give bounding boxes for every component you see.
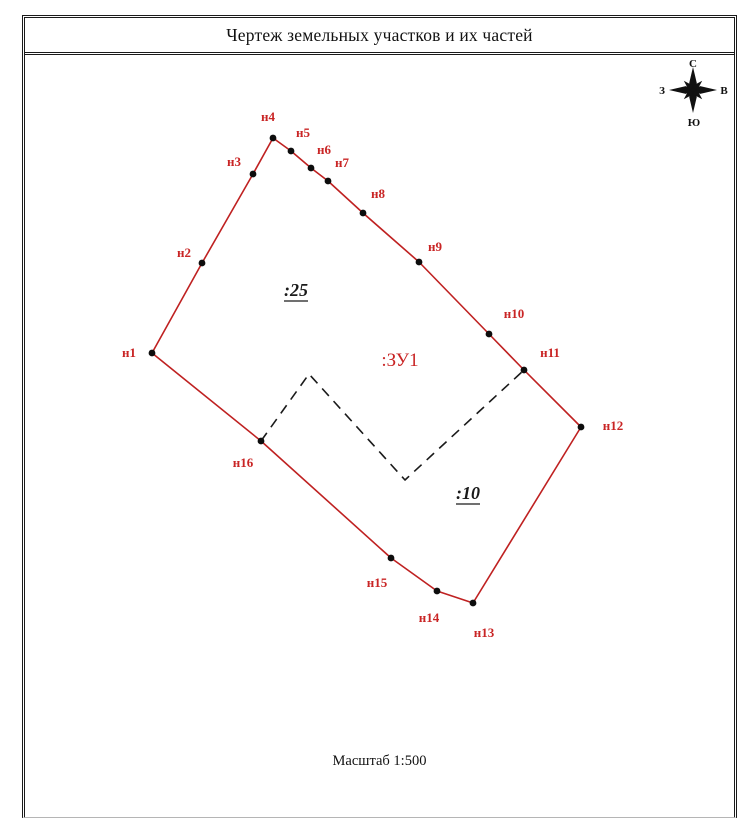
parcel-label-2: :ЗУ1 [381,350,418,371]
boundary-point-dot-н12 [578,424,585,431]
boundary-point-dot-н2 [199,260,206,267]
parcel-geometry: н1н2н3н4н5н6н7н8н9н10н11н12н13н14н15н16:… [122,109,623,640]
cadastral-drawing: н1н2н3н4н5н6н7н8н9н10н11н12н13н14н15н16:… [0,0,750,820]
compass-south-label: Ю [688,117,700,129]
boundary-point-dot-н14 [434,588,441,595]
compass-star-icon [669,67,717,113]
scale-label: Масштаб 1:500 [22,753,737,770]
boundary-point-label-н13: н13 [474,625,495,640]
boundary-point-dot-н10 [486,331,493,338]
compass-east-label: В [720,85,728,97]
boundary-point-dot-н5 [288,148,295,155]
boundary-point-dot-н4 [270,135,277,142]
boundary-point-dot-н9 [416,259,423,266]
boundary-point-label-н10: н10 [504,306,525,321]
boundary-point-label-н6: н6 [317,142,331,157]
boundary-point-dot-н11 [521,367,528,374]
boundary-point-label-н3: н3 [227,154,241,169]
boundary-point-label-н16: н16 [233,455,254,470]
parcel-label-1: :25 [284,280,308,300]
boundary-point-label-н1: н1 [122,345,136,360]
boundary-point-label-н5: н5 [296,125,310,140]
boundary-point-dot-н7 [325,178,332,185]
compass-west-label: З [659,85,665,97]
compass-rose: С В З Ю [659,58,728,129]
boundary-point-label-н11: н11 [540,345,560,360]
parcel-boundary-line [152,138,581,603]
boundary-point-label-н2: н2 [177,245,191,260]
sheet: Чертеж земельных участков и их частей н1… [0,0,750,820]
boundary-point-dot-н8 [360,210,367,217]
boundary-point-dot-н1 [149,350,156,357]
boundary-point-dot-н6 [308,165,315,172]
boundary-point-dot-н16 [258,438,265,445]
boundary-point-label-н4: н4 [261,109,275,124]
boundary-point-dot-н13 [470,600,477,607]
parcel-divider-dashed-line [261,370,524,480]
boundary-point-label-н14: н14 [419,610,440,625]
boundary-point-label-н8: н8 [371,186,385,201]
compass-north-label: С [689,58,697,70]
boundary-point-dot-н3 [250,171,257,178]
boundary-point-dot-н15 [388,555,395,562]
parcel-label-3: :10 [456,483,480,503]
boundary-point-label-н15: н15 [367,575,388,590]
boundary-point-label-н7: н7 [335,155,349,170]
boundary-point-label-н12: н12 [603,418,624,433]
compass-star-center [691,88,695,92]
boundary-point-label-н9: н9 [428,239,442,254]
